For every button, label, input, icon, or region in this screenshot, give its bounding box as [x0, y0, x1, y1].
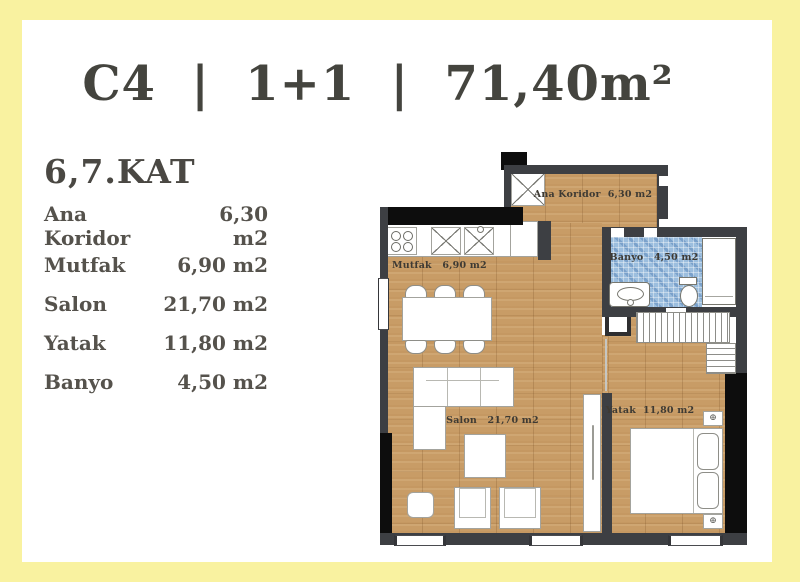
- entry-door-gap-2: [659, 219, 668, 227]
- dining-chair: [405, 340, 427, 354]
- room-name: Mutfak: [44, 253, 125, 277]
- toilet-symbol: [677, 277, 699, 307]
- window-bottom-2: [529, 535, 583, 546]
- list-item: Salon 21,70 m2: [44, 284, 268, 323]
- wardrobe-rail: [636, 312, 730, 343]
- ceiling-lamp-symbol: ⊕: [703, 411, 723, 426]
- tv-unit-handle: [592, 425, 594, 480]
- window-left: [378, 278, 389, 330]
- dining-chair: [434, 340, 456, 354]
- room-name: Salon: [44, 292, 107, 316]
- armchair-seat-line: [459, 488, 486, 518]
- coffee-table: [464, 434, 506, 478]
- room-label-living: Salon 21,70 m2: [435, 415, 550, 426]
- shelf-unit: [706, 343, 736, 374]
- room-label-kitchen: Mutfak 6,90 m2: [392, 260, 484, 271]
- room-name: Yatak: [44, 331, 106, 355]
- armchair-seat-line: [504, 488, 536, 518]
- list-item: Banyo 4,50 m2: [44, 362, 268, 401]
- floor-label: 6,7.KAT: [44, 152, 196, 191]
- pillow: [697, 472, 719, 509]
- bedroom-door-leaf: [605, 339, 607, 391]
- shower-tray: [702, 238, 736, 305]
- page-title: C4 | 1+1 | 71,40m²: [0, 56, 756, 112]
- sofa-back-line: [426, 380, 499, 381]
- room-label-bedroom: Yatak 11,80 m2: [598, 405, 702, 416]
- sofa-cushion-line: [447, 368, 448, 406]
- window-bottom-3: [668, 535, 723, 546]
- dining-chair: [463, 340, 485, 354]
- toilet-tank: [679, 277, 697, 285]
- stove-symbol: [387, 227, 417, 255]
- room-label-bathroom: Banyo 4,50 m2: [606, 252, 702, 263]
- room-area: 21,70 m2: [163, 292, 268, 316]
- room-area: 11,80 m2: [163, 331, 268, 355]
- armchair: [454, 487, 491, 529]
- entry-wall-strip: [504, 170, 511, 207]
- oven-symbol: [431, 227, 461, 255]
- fridge-box: [510, 221, 538, 257]
- stove-burners: [390, 230, 414, 252]
- faucet-icon: [477, 226, 484, 233]
- basin-tap: [627, 299, 634, 306]
- wall-top: [504, 165, 668, 174]
- room-area-list: Ana Koridor 6,30 m2 Mutfak 6,90 m2 Salon…: [44, 206, 268, 401]
- room-name: Ana Koridor: [44, 202, 178, 250]
- bed-sheet-line: [693, 429, 694, 513]
- side-table: [407, 492, 434, 518]
- washbasin: [609, 282, 650, 307]
- ceiling-lamp-symbol: ⊕: [703, 514, 723, 529]
- bathroom-door-jamb-2: [644, 228, 657, 237]
- room-area: 6,30 m2: [178, 202, 268, 250]
- shower-inner-line: [705, 296, 733, 297]
- list-item: Yatak 11,80 m2: [44, 323, 268, 362]
- sofa-cushion-line: [480, 368, 481, 406]
- toilet-bowl: [680, 285, 698, 307]
- window-bottom-1: [394, 535, 446, 546]
- column-right: [725, 373, 747, 535]
- sofa-main: [413, 367, 514, 407]
- room-label-corridor: Ana Koridor 6,30 m2: [528, 189, 658, 200]
- entry-door-gap: [659, 176, 668, 186]
- floor-plan: ⊕ ⊕ Ana Koridor 6,30 m2 Mutfak 6,90 m2 B…: [378, 145, 748, 555]
- wall-right-upper: [736, 227, 747, 377]
- list-item: Mutfak 6,90 m2: [44, 245, 268, 284]
- floorplan-page: { "header": { "title": "C4 | 1+1 | 71,40…: [0, 0, 800, 582]
- armchair: [499, 487, 541, 529]
- pillow: [697, 433, 719, 470]
- column-left: [380, 433, 392, 537]
- dining-table: [402, 297, 492, 341]
- kitchen-wall-band: [380, 207, 523, 225]
- room-area: 6,90 m2: [177, 253, 268, 277]
- room-area: 4,50 m2: [177, 370, 268, 394]
- room-name: Banyo: [44, 370, 113, 394]
- kitchen-wall-stub: [538, 221, 551, 260]
- kitchen-sink-symbol: [464, 227, 494, 255]
- list-item: Ana Koridor 6,30 m2: [44, 206, 268, 245]
